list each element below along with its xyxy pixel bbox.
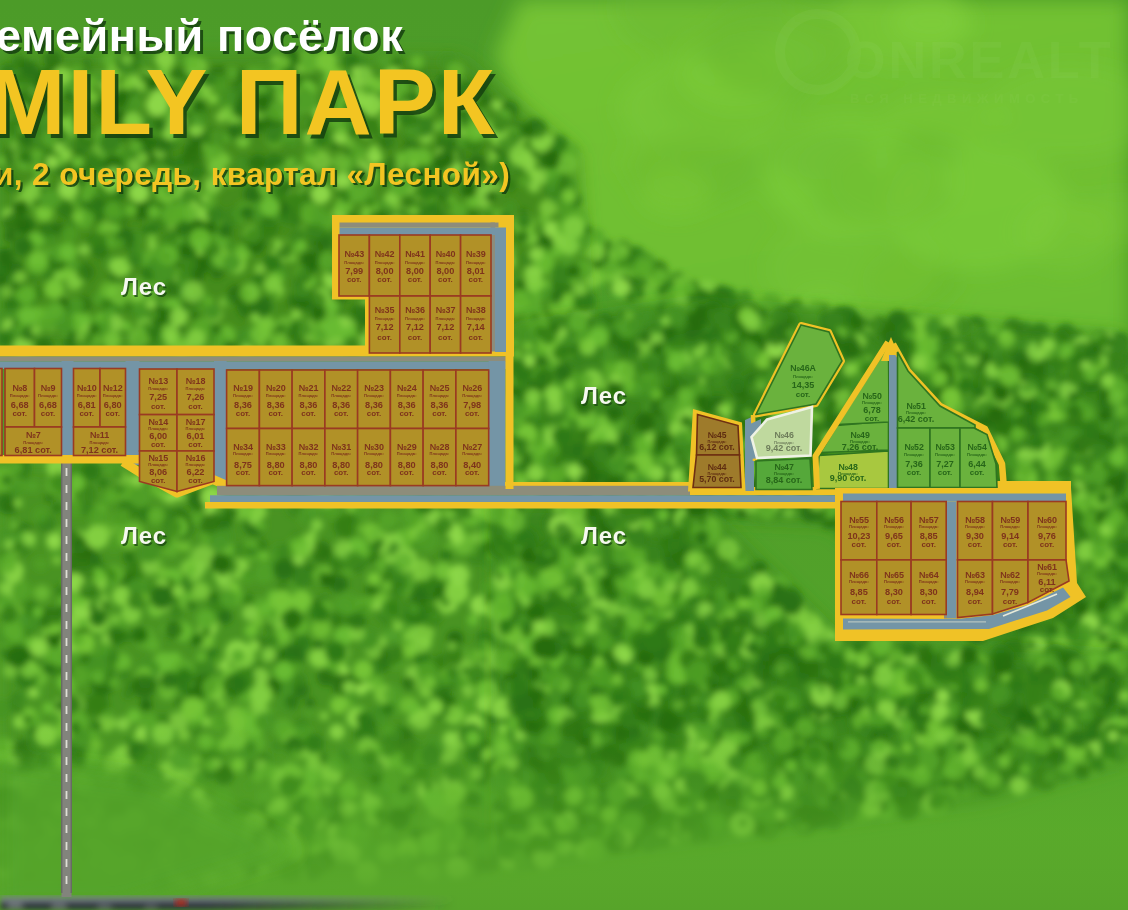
svg-text:№56: №56 (884, 515, 904, 525)
svg-text:№53: №53 (935, 442, 955, 452)
svg-text:сот.: сот. (970, 468, 985, 477)
svg-text:Площадь:: Площадь: (397, 451, 417, 456)
svg-text:7,12: 7,12 (436, 322, 454, 332)
svg-text:сот.: сот. (399, 409, 414, 418)
svg-text:Площадь:: Площадь: (466, 316, 486, 321)
svg-text:сот.: сот. (1003, 540, 1018, 549)
svg-text:№26: №26 (462, 383, 482, 393)
svg-text:№54: №54 (967, 442, 987, 452)
svg-text:Площадь:: Площадь: (436, 260, 456, 265)
svg-text:№51: №51 (906, 401, 926, 411)
svg-text:7,12 сот.: 7,12 сот. (81, 445, 118, 455)
svg-text:сот.: сот. (921, 540, 936, 549)
svg-text:сот.: сот. (968, 540, 983, 549)
svg-text:Площадь:: Площадь: (364, 451, 384, 456)
svg-text:Площадь:: Площадь: (331, 451, 351, 456)
svg-text:Площадь:: Площадь: (405, 260, 425, 265)
svg-text:№41: №41 (405, 249, 425, 259)
svg-text:№42: №42 (375, 249, 395, 259)
svg-text:сот.: сот. (469, 275, 484, 284)
svg-text:№44: №44 (708, 462, 727, 472)
svg-text:7,79: 7,79 (1001, 587, 1019, 597)
svg-text:сот.: сот. (887, 597, 902, 606)
svg-text:7,26 сот.: 7,26 сот. (842, 442, 878, 452)
svg-text:7,12: 7,12 (406, 322, 424, 332)
svg-text:сот.: сот. (907, 468, 922, 477)
svg-text:Площадь:: Площадь: (430, 393, 450, 398)
svg-text:сот.: сот. (408, 333, 423, 342)
svg-text:Площадь:: Площадь: (919, 524, 939, 529)
svg-text:№55: №55 (849, 515, 869, 525)
svg-text:№52: №52 (904, 442, 924, 452)
svg-text:сот.: сот. (399, 468, 414, 477)
svg-text:сот.: сот. (432, 468, 447, 477)
svg-text:сот.: сот. (151, 476, 166, 485)
svg-text:6,12 сот.: 6,12 сот. (699, 442, 735, 452)
svg-text:7,99: 7,99 (345, 266, 363, 276)
svg-text:Площадь:: Площадь: (965, 524, 985, 529)
svg-text:№13: №13 (148, 376, 168, 386)
svg-text:Площадь:: Площадь: (344, 260, 364, 265)
svg-text:Площадь:: Площадь: (405, 316, 425, 321)
svg-text:Площадь:: Площадь: (919, 579, 939, 584)
svg-text:№7: №7 (26, 430, 41, 440)
svg-text:сот.: сот. (469, 333, 484, 342)
svg-text:сот.: сот. (268, 409, 283, 418)
svg-text:№36: №36 (405, 305, 425, 315)
svg-text:Площадь:: Площадь: (1037, 524, 1057, 529)
svg-text:6,44: 6,44 (968, 459, 986, 469)
svg-text:№58: №58 (965, 515, 985, 525)
svg-text:8,00: 8,00 (406, 266, 424, 276)
svg-text:8,85: 8,85 (850, 587, 868, 597)
svg-text:8,84 сот.: 8,84 сот. (766, 475, 802, 485)
svg-text:Площадь:: Площадь: (793, 374, 813, 379)
svg-text:Площадь:: Площадь: (967, 452, 987, 457)
svg-text:9,90 сот.: 9,90 сот. (830, 473, 866, 483)
svg-text:№57: №57 (919, 515, 939, 525)
svg-text:MILY ПАРК: MILY ПАРК (0, 50, 497, 154)
svg-text:сот.: сот. (887, 540, 902, 549)
svg-text:№40: №40 (435, 249, 455, 259)
svg-text:Лес: Лес (581, 382, 627, 409)
svg-text:Площадь:: Площадь: (436, 316, 456, 321)
svg-text:Площадь:: Площадь: (186, 386, 206, 391)
svg-text:14,35: 14,35 (792, 380, 815, 390)
svg-text:7,25: 7,25 (149, 392, 167, 402)
svg-text:Площадь:: Площадь: (233, 393, 253, 398)
svg-text:сот.: сот. (921, 597, 936, 606)
svg-text:№38: №38 (466, 305, 486, 315)
svg-text:№9: №9 (40, 383, 55, 393)
svg-text:№46A: №46A (790, 363, 817, 373)
svg-text:8,00: 8,00 (436, 266, 454, 276)
svg-text:8,94: 8,94 (966, 587, 985, 597)
svg-text:Площадь:: Площадь: (103, 393, 123, 398)
svg-text:6,22: 6,22 (187, 467, 205, 477)
svg-text:Площадь:: Площадь: (904, 452, 924, 457)
svg-text:Лес: Лес (121, 273, 167, 300)
svg-text:сот.: сот. (334, 409, 349, 418)
svg-text:Площадь:: Площадь: (77, 393, 97, 398)
svg-text:8,30: 8,30 (885, 587, 903, 597)
svg-text:№25: №25 (429, 383, 449, 393)
svg-text:6,42 сот.: 6,42 сот. (898, 414, 934, 424)
svg-text:сот.: сот. (367, 409, 382, 418)
svg-text:Площадь:: Площадь: (38, 393, 58, 398)
svg-text:сот.: сот. (938, 468, 953, 477)
svg-text:№18: №18 (185, 376, 205, 386)
svg-text:Площадь:: Площадь: (466, 260, 486, 265)
svg-text:сот.: сот. (432, 409, 447, 418)
svg-text:Площадь:: Площадь: (884, 579, 904, 584)
svg-text:№24: №24 (397, 383, 417, 393)
svg-text:сот.: сот. (1003, 597, 1018, 606)
svg-text:сот.: сот. (968, 597, 983, 606)
svg-text:Площадь:: Площадь: (935, 452, 955, 457)
svg-text:Площадь:: Площадь: (148, 386, 168, 391)
svg-text:сот.: сот. (367, 468, 382, 477)
svg-text:сот.: сот. (301, 409, 316, 418)
svg-text:№20: №20 (266, 383, 286, 393)
svg-text:сот.: сот. (408, 275, 423, 284)
svg-text:Площадь:: Площадь: (1000, 579, 1020, 584)
svg-text:№8: №8 (12, 383, 27, 393)
svg-text:Площадь:: Площадь: (849, 524, 869, 529)
svg-text:сот.: сот. (188, 476, 203, 485)
svg-text:№35: №35 (375, 305, 395, 315)
svg-text:8,01: 8,01 (467, 266, 485, 276)
svg-text:сот.: сот. (852, 597, 867, 606)
svg-text:Площадь:: Площадь: (375, 260, 395, 265)
svg-text:Площадь:: Площадь: (233, 451, 253, 456)
svg-text:сот.: сот. (151, 440, 166, 449)
svg-text:№45: №45 (708, 430, 727, 440)
svg-text:Площадь:: Площадь: (364, 393, 384, 398)
svg-text:Площадь:: Площадь: (10, 393, 30, 398)
svg-text:6,78: 6,78 (863, 405, 881, 415)
svg-text:сот.: сот. (347, 275, 362, 284)
svg-text:Площадь:: Площадь: (397, 393, 417, 398)
svg-text:сот.: сот. (377, 333, 392, 342)
svg-text:7,12: 7,12 (376, 322, 394, 332)
svg-text:Площадь:: Площадь: (849, 579, 869, 584)
svg-text:Площадь:: Площадь: (331, 393, 351, 398)
svg-text:8,06: 8,06 (149, 467, 167, 477)
svg-text:сот.: сот. (188, 440, 203, 449)
svg-text:сот.: сот. (465, 409, 480, 418)
svg-text:№46: №46 (774, 430, 794, 440)
svg-text:№60: №60 (1037, 515, 1057, 525)
svg-text:сот.: сот. (465, 468, 480, 477)
svg-text:сот.: сот. (79, 409, 94, 418)
svg-text:7,36: 7,36 (905, 459, 923, 469)
svg-text:№10: №10 (77, 383, 97, 393)
svg-text:Площадь:: Площадь: (965, 579, 985, 584)
svg-text:сот.: сот. (438, 275, 453, 284)
svg-text:ONREALT: ONREALT (845, 31, 1113, 89)
svg-text:сот.: сот. (334, 468, 349, 477)
svg-text:6,81 сот.: 6,81 сот. (15, 445, 52, 455)
svg-text:сот.: сот. (105, 409, 120, 418)
svg-text:8,00: 8,00 (376, 266, 394, 276)
svg-text:Площадь:: Площадь: (299, 393, 319, 398)
svg-text:сот.: сот. (236, 468, 251, 477)
svg-text:сот.: сот. (188, 402, 203, 411)
svg-text:№59: №59 (1000, 515, 1020, 525)
svg-text:№48: №48 (838, 462, 858, 472)
svg-text:Площадь:: Площадь: (462, 393, 482, 398)
svg-text:№22: №22 (331, 383, 351, 393)
svg-text:№23: №23 (364, 383, 384, 393)
svg-text:сот.: сот. (268, 468, 283, 477)
svg-text:№12: №12 (103, 383, 123, 393)
svg-text:сот.: сот. (377, 275, 392, 284)
svg-text:7,14: 7,14 (467, 322, 486, 332)
svg-text:Площадь:: Площадь: (266, 393, 286, 398)
svg-text:5,70 сот.: 5,70 сот. (699, 474, 735, 484)
svg-text:ВСЯ НЕДВИЖИМОСТЬ: ВСЯ НЕДВИЖИМОСТЬ (850, 91, 1084, 106)
svg-text:сот.: сот. (1040, 585, 1055, 594)
svg-text:сот.: сот. (865, 414, 880, 423)
svg-text:№21: №21 (298, 383, 318, 393)
svg-text:сот.: сот. (151, 402, 166, 411)
svg-text:сот.: сот. (301, 468, 316, 477)
svg-text:сот.: сот. (12, 409, 27, 418)
svg-text:сот.: сот. (41, 409, 56, 418)
svg-text:Площадь:: Площадь: (266, 451, 286, 456)
svg-text:сот.: сот. (438, 333, 453, 342)
svg-text:№39: №39 (466, 249, 486, 259)
svg-text:№43: №43 (344, 249, 364, 259)
svg-text:7,27: 7,27 (936, 459, 954, 469)
svg-text:Площадь:: Площадь: (299, 451, 319, 456)
svg-text:Площадь:: Площадь: (430, 451, 450, 456)
svg-text:№11: №11 (90, 430, 110, 440)
svg-text:Лес: Лес (581, 522, 627, 549)
svg-text:сот.: сот. (1040, 540, 1055, 549)
svg-text:сот.: сот. (852, 540, 867, 549)
svg-text:и, 2 очередь, квартал «Лесной»: и, 2 очередь, квартал «Лесной») (0, 156, 510, 192)
svg-text:сот.: сот. (236, 409, 251, 418)
svg-text:9,42 сот.: 9,42 сот. (766, 443, 802, 453)
svg-text:Площадь:: Площадь: (884, 524, 904, 529)
svg-text:Площадь:: Площадь: (375, 316, 395, 321)
svg-text:Площадь:: Площадь: (462, 451, 482, 456)
svg-text:№37: №37 (435, 305, 455, 315)
svg-text:Лес: Лес (121, 522, 167, 549)
svg-text:Площадь:: Площадь: (1000, 524, 1020, 529)
svg-text:сот.: сот. (796, 390, 811, 399)
svg-text:8,30: 8,30 (920, 587, 938, 597)
svg-text:Площадь:: Площадь: (1037, 571, 1057, 576)
svg-text:7,26: 7,26 (187, 392, 205, 402)
svg-text:№19: №19 (233, 383, 253, 393)
